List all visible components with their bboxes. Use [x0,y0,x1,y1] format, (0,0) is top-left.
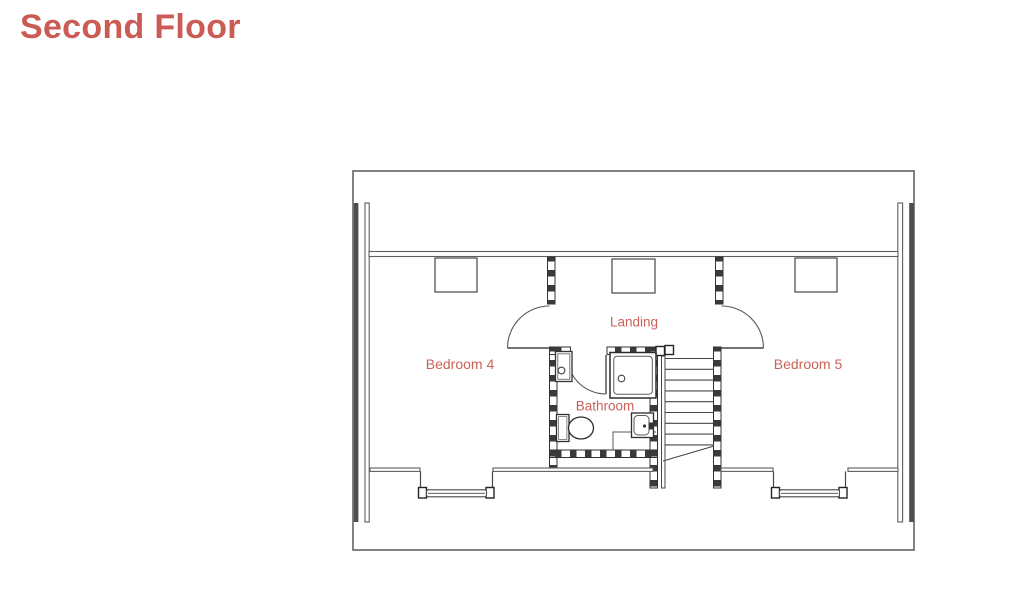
staircase [656,346,714,489]
gable-wall-right [898,203,914,522]
room-label-bathroom: Bathroom [576,399,635,414]
room-label-bedroom5: Bedroom 5 [774,356,842,372]
door-bedroom5 [722,306,764,348]
door-bedroom4 [508,306,550,348]
chimney-breast-left [435,258,477,292]
dormer-window-right [772,471,848,498]
door-bathroom [567,355,606,394]
dormer-window-left [419,471,495,498]
chimney-breasts [435,258,837,293]
sink [632,413,654,438]
bottom-walls [370,468,898,471]
room-label-landing: Landing [610,315,658,330]
chimney-breast-right [795,258,837,292]
stair-break-line [663,446,714,461]
chimney-breast-center [612,259,655,293]
gable-wall-left [354,203,369,522]
newel-post [656,347,665,356]
toilet [557,415,594,442]
room-label-bedroom4: Bedroom 4 [426,356,494,372]
newel-post [665,346,674,355]
floor-plan: Bedroom 4 Landing Bathroom Bedroom 5 [352,170,916,552]
shower [610,353,656,399]
page-title: Second Floor [20,8,241,47]
airing-cupboard [556,352,573,382]
top-cross-wall [369,252,898,257]
